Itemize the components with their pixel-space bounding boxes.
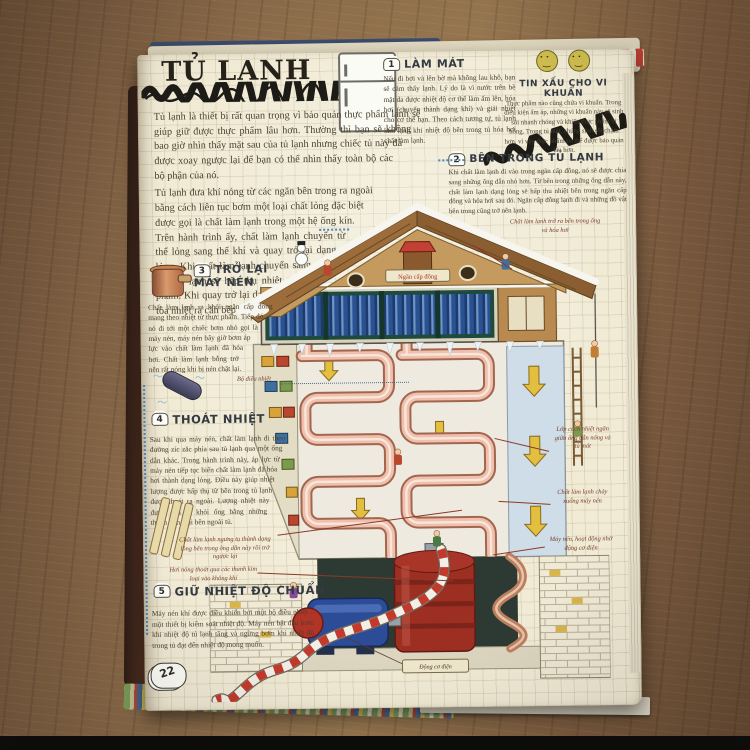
section-5-body: Máy nén khí được điều khiển bởi một bộ đ… — [152, 607, 315, 651]
section-5-heading-wrap: 5GIỮ NHIỆT ĐỘ CHUẨN — [153, 583, 325, 599]
dotted-trail — [319, 228, 349, 230]
scribble-border-title — [141, 80, 351, 103]
dotted-trail — [438, 159, 464, 161]
label-insulation: Lớp cách nhiệt ngăn giữa ống dẫn nóng và… — [552, 425, 614, 452]
label-flow-down: Chất làm lạnh chảy xuống máy nén — [553, 488, 611, 506]
tiny-figure — [324, 260, 332, 276]
section-ben-trong-tu-lanh: 2BÊN TRONG TỦ LẠNH Khi chất làm lạnh đi … — [448, 151, 627, 217]
freezer-sign: Ngăn cấp đông — [386, 269, 450, 282]
label-compressor-motor: Máy nén, hoạt động nhờ động cơ điện — [549, 535, 613, 553]
label-heat-out: Hơi nóng thoát qua các thanh kim loại và… — [169, 566, 257, 584]
section-1-heading: LÀM MÁT — [404, 57, 465, 71]
dotted-trail-vertical — [143, 385, 148, 635]
section-1-body: Nếu đi bơi và lên bờ mà không lau khô, b… — [383, 72, 516, 146]
thermostat-pipe-icon: 〜〜〜 — [155, 372, 207, 413]
snowman-number-badge-1: 1 — [383, 58, 400, 71]
snowman-number-badge-4: 4 — [151, 413, 168, 426]
compressor-pot-icon — [148, 262, 188, 298]
section-5-heading: GIỮ NHIỆT ĐỘ CHUẨN — [174, 583, 325, 599]
section-2-body: Khi chất làm lạnh đi vào trong ngăn cấp … — [448, 166, 627, 217]
photo-of-book-on-table: TỦ LẠNH Tủ lạnh là thiết bị rất quan trọ… — [0, 0, 750, 750]
bacteria-icon — [568, 50, 590, 72]
tip-box-heading: TIN XẤU CHO VI KHUẨN — [503, 78, 623, 99]
snowman-number-badge-5: 5 — [153, 585, 170, 598]
page-number-cloud: 22 — [146, 658, 190, 691]
label-condense: Chất làm lạnh ngưng tụ thành dạng lỏng b… — [173, 535, 277, 562]
tiny-figure — [591, 340, 599, 357]
svg-text:Động cơ điện: Động cơ điện — [418, 664, 452, 670]
book-page: TỦ LẠNH Tủ lạnh là thiết bị rất quan trọ… — [137, 49, 642, 711]
section-3-body: Chất làm lạnh ra khỏi ngăn cấp đông mang… — [148, 301, 281, 375]
section-lam-mat: 1LÀM MÁT Nếu đi bơi và lên bờ mà không l… — [383, 56, 516, 146]
section-4-heading: THOÁT NHIỆT — [172, 412, 265, 427]
photo-bottom-bar — [0, 736, 750, 750]
tiny-figure — [433, 530, 441, 546]
snowman — [295, 241, 307, 265]
label-thermostat: Bộ điều nhiệt — [229, 375, 279, 384]
fridge-body — [254, 341, 567, 560]
section-4-heading-wrap: 4THOÁT NHIỆT — [151, 412, 265, 427]
section-3-heading-wrap: 3TRỞ LẠI MÁY NÉN — [194, 263, 290, 290]
tip-box-body: Thực phẩm nào cũng chứa vi khuẩn. Trong … — [504, 98, 625, 156]
bacteria-icon — [536, 50, 558, 72]
label-refrigerant-out: Chất làm lạnh trở ra bên trong ống và hó… — [509, 217, 601, 235]
svg-text:Ngăn cấp đông: Ngăn cấp đông — [398, 273, 438, 280]
tip-box-bacteria: TIN XẤU CHO VI KHUẨN Thực phẩm nào cũng … — [503, 49, 624, 156]
tiny-figure — [394, 449, 402, 465]
section-2-heading: BÊN TRONG TỦ LẠNH — [469, 151, 604, 165]
